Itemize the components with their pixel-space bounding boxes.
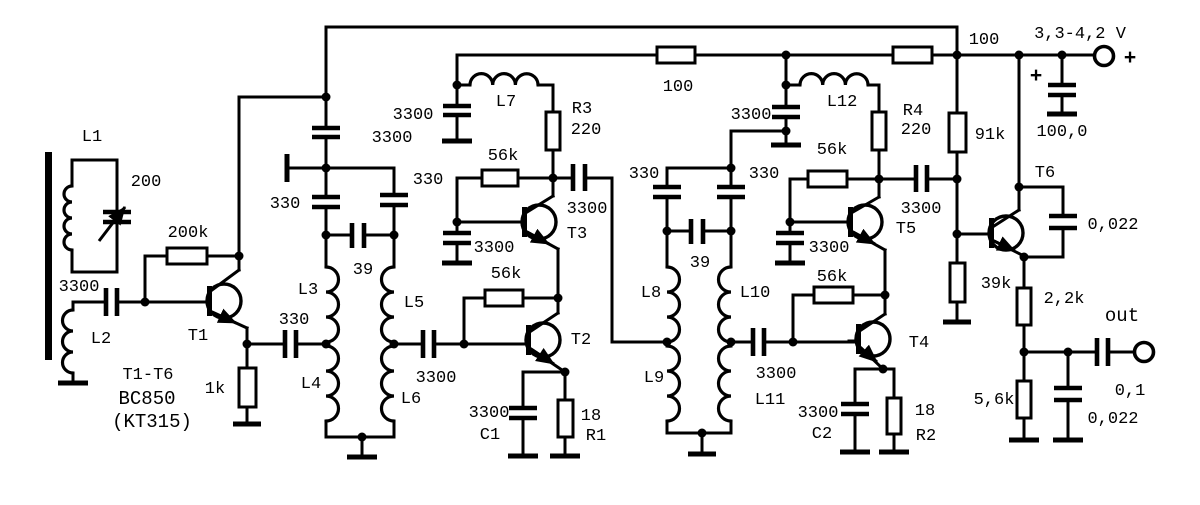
resistor-39k: [950, 263, 965, 302]
capacitor-filter1-left-330: [312, 197, 340, 207]
label-l1: L1: [82, 128, 102, 147]
label-r3-value: 220: [571, 121, 602, 140]
label-l6: L6: [401, 390, 421, 409]
label-a1-decouple: 3300: [393, 106, 434, 125]
label-l12: L12: [827, 93, 858, 112]
label-r3-name: R3: [572, 100, 592, 119]
terminal-output: [1135, 343, 1154, 362]
label-f2-out: 3300: [756, 365, 797, 384]
label-c-emitter: 330: [279, 311, 310, 330]
radio-if-amplifier-schematic: L1 200 3300 L2 200k T1 1k 330 T1-T6 BC85…: [0, 0, 1200, 505]
transistor-t6: [982, 210, 1024, 256]
label-r2-value: 18: [915, 402, 935, 421]
junction-dot: [1015, 51, 1024, 60]
capacitor-filter1-right-330: [380, 195, 408, 205]
capacitor-amp2-couple-3300: [916, 165, 927, 192]
capacitor-filter2-out-3300: [753, 328, 764, 356]
label-r2-name: R2: [916, 427, 936, 446]
transistor-t2: [518, 313, 565, 372]
resistor-1k: [239, 368, 256, 407]
t2-body: [526, 323, 560, 357]
label-f2-left: 330: [629, 165, 660, 184]
junction-dot: [663, 338, 672, 347]
label-terminal-plus: +: [1124, 48, 1137, 71]
label-t2: T2: [571, 331, 591, 350]
t4-base-bar: [856, 324, 861, 354]
label-a2-fb-upper: 56k: [817, 141, 848, 160]
label-f2-decouple: 3300: [731, 106, 772, 125]
label-note3: (KT315): [112, 411, 192, 433]
junction-dot: [1058, 51, 1067, 60]
junction-dot: [953, 51, 962, 60]
label-a2-couple: 3300: [901, 200, 942, 219]
label-f2-right: 330: [749, 165, 780, 184]
inductor-l6: [381, 346, 394, 421]
label-voltage: 3,3-4,2 V: [1034, 25, 1127, 44]
label-r-emitter: 1k: [205, 380, 225, 399]
resistor-r1-18: [558, 400, 573, 437]
resistor-r2-18: [887, 398, 901, 434]
label-c-tune: 200: [131, 173, 162, 192]
junction-dot: [390, 340, 399, 349]
junction-dot: [460, 340, 469, 349]
label-f1-left: 330: [270, 195, 301, 214]
label-5-6k: 5,6k: [974, 391, 1015, 410]
label-c-feedback: 0,022: [1087, 216, 1138, 235]
junction-dot: [875, 175, 884, 184]
junction-dot: [1020, 253, 1029, 262]
ferrite-rod: [45, 152, 52, 360]
junction-dot: [663, 227, 672, 236]
junction-dot: [322, 231, 331, 240]
label-c-filter: 100,0: [1036, 123, 1087, 142]
t5-body: [848, 205, 882, 239]
wire-l1-tank-loop: [72, 160, 117, 272]
transistor-t4: [849, 314, 890, 369]
label-r4-name: R4: [903, 102, 923, 121]
capacitor-t3-base-3300: [443, 233, 471, 243]
capacitor-t5-base-3300: [776, 233, 804, 243]
capacitor-t6-feedback-0022: [1049, 216, 1077, 228]
resistor-56k-t3: [482, 170, 518, 186]
junction-dot: [1020, 348, 1029, 357]
label-a2-base-cap: 3300: [809, 239, 850, 258]
label-l11: L11: [755, 391, 786, 410]
capacitor-output-01: [1097, 338, 1108, 366]
inductor-l10: [719, 267, 732, 342]
resistor-200k: [167, 248, 207, 264]
inductor-l9: [667, 346, 680, 421]
label-t3: T3: [567, 225, 587, 244]
label-2-2k: 2,2k: [1044, 290, 1085, 309]
label-a1-fb-upper: 56k: [488, 147, 519, 166]
inductor-l4: [326, 346, 339, 421]
label-r-dec-2: 100: [969, 31, 1000, 50]
junction-dots: [141, 51, 1073, 442]
capacitor-filter2-right-330: [717, 187, 745, 197]
label-l10: L10: [740, 284, 771, 303]
inductor-l11: [719, 346, 732, 421]
junction-dot: [554, 294, 563, 303]
label-t5: T5: [896, 220, 916, 239]
junction-dot: [561, 368, 570, 377]
label-c-bypass: 0,022: [1087, 410, 1138, 429]
junction-dot: [1064, 348, 1073, 357]
label-a2-fb-lower: 56k: [817, 268, 848, 287]
schematic-canvas: L1 200 3300 L2 200k T1 1k 330 T1-T6 BC85…: [0, 0, 1200, 505]
junction-dot: [1015, 183, 1024, 192]
label-f2-bridge: 39: [690, 254, 710, 273]
resistor-56k-t2: [485, 290, 523, 306]
inductor-l12: [800, 74, 868, 85]
capacitor-filter1-decouple-3300: [312, 128, 340, 137]
label-c1-value: 3300: [469, 404, 510, 423]
junction-dot: [782, 81, 791, 90]
label-t6: T6: [1035, 164, 1055, 183]
t3-body: [522, 205, 556, 239]
terminal-power: [1095, 47, 1114, 66]
junction-dot: [322, 164, 331, 173]
resistor-56k-t4: [814, 287, 853, 303]
inductor-l1: [64, 186, 72, 250]
label-r1-name: R1: [586, 427, 606, 446]
label-f1-bridge: 39: [353, 261, 373, 280]
label-cap-plus: +: [1030, 66, 1043, 89]
junction-dot: [141, 298, 150, 307]
capacitor-filter2-decouple-3300: [772, 107, 800, 117]
junction-dot: [453, 81, 462, 90]
inductor-l2: [63, 310, 74, 373]
resistor-100-a: [657, 47, 695, 63]
junction-dot: [322, 340, 331, 349]
t6-body: [989, 216, 1023, 250]
capacitor-emitter-330: [285, 330, 296, 358]
resistor-100-b: [893, 47, 932, 63]
junction-dot: [953, 175, 962, 184]
junction-dot: [786, 218, 795, 227]
label-l4: L4: [301, 375, 321, 394]
label-note2: BC850: [118, 388, 175, 410]
capacitor-l7-decouple-3300: [443, 106, 471, 115]
capacitor-filter1-bridge-39: [352, 223, 364, 248]
resistor-r3-220: [546, 112, 560, 150]
label-r-dec-1: 100: [663, 78, 694, 97]
label-c-out: 0,1: [1115, 382, 1146, 401]
junction-dot: [698, 429, 707, 438]
inductor-l8: [667, 267, 680, 342]
capacitor-filter-1000: [1048, 85, 1076, 95]
label-c2-value: 3300: [798, 404, 839, 423]
junction-dot: [727, 338, 736, 347]
label-c2-name: C2: [812, 425, 832, 444]
label-a1-couple: 3300: [567, 200, 608, 219]
junction-dot: [782, 127, 791, 136]
label-l3: L3: [298, 281, 318, 300]
resistors: [167, 47, 1031, 437]
label-c1-name: C1: [480, 426, 500, 445]
t2-base-bar: [526, 325, 531, 355]
junction-dot: [879, 365, 888, 374]
output-stage-wires: [957, 55, 1134, 438]
capacitor-c2: [841, 404, 869, 414]
label-c-in: 3300: [59, 278, 100, 297]
junction-dot: [789, 338, 798, 347]
resistor-2-2k: [1017, 288, 1031, 325]
label-t1: T1: [188, 327, 208, 346]
t4-body: [856, 322, 890, 356]
junction-dot: [453, 218, 462, 227]
label-r1-value: 18: [581, 407, 601, 426]
label-t4: T4: [909, 334, 929, 353]
label-a1-base-cap: 3300: [474, 239, 515, 258]
junction-dot: [727, 164, 736, 173]
junction-dot: [322, 93, 331, 102]
label-91k: 91k: [975, 126, 1006, 145]
capacitor-filter1-out-3300: [423, 330, 434, 358]
junction-dot: [390, 231, 399, 240]
junction-dot: [782, 51, 791, 60]
label-out: out: [1105, 305, 1139, 327]
inductor-l3: [326, 267, 339, 342]
label-a1-fb-lower: 56k: [491, 265, 522, 284]
transistor-t3: [515, 196, 558, 249]
junction-dot: [358, 433, 367, 442]
label-r4-value: 220: [901, 121, 932, 140]
label-l2: L2: [91, 330, 111, 349]
capacitor-filter2-left-330: [653, 187, 681, 197]
junction-dot: [953, 230, 962, 239]
capacitor-amp1-couple-3300: [573, 164, 585, 191]
junction-dot: [235, 252, 244, 261]
inductor-l5: [381, 267, 394, 342]
resistor-91k: [949, 113, 966, 152]
label-l8: L8: [641, 284, 661, 303]
wire-filter1-top: [287, 97, 394, 267]
capacitor-output-bypass-0022: [1054, 388, 1082, 400]
label-r-bias: 200k: [168, 224, 209, 243]
label-f1-right: 330: [413, 171, 444, 190]
label-l5: L5: [404, 294, 424, 313]
label-f1-decouple: 3300: [372, 129, 413, 148]
label-f1-out: 3300: [416, 369, 457, 388]
label-note1: T1-T6: [122, 366, 173, 385]
junction-dot: [881, 291, 890, 300]
resistor-5-6k: [1017, 381, 1031, 418]
resistor-56k-t5: [808, 171, 847, 187]
inductor-l7: [470, 74, 538, 85]
label-l7: L7: [496, 93, 516, 112]
junction-dot: [727, 227, 736, 236]
capacitor-filter2-bridge-39: [691, 219, 703, 244]
label-39k: 39k: [981, 275, 1012, 294]
junction-dot: [549, 174, 558, 183]
junction-dot: [243, 340, 252, 349]
resistor-r4-220: [872, 112, 886, 150]
label-l9: L9: [644, 369, 664, 388]
capacitor-c1: [509, 408, 537, 418]
capacitor-input-3300: [106, 288, 117, 316]
